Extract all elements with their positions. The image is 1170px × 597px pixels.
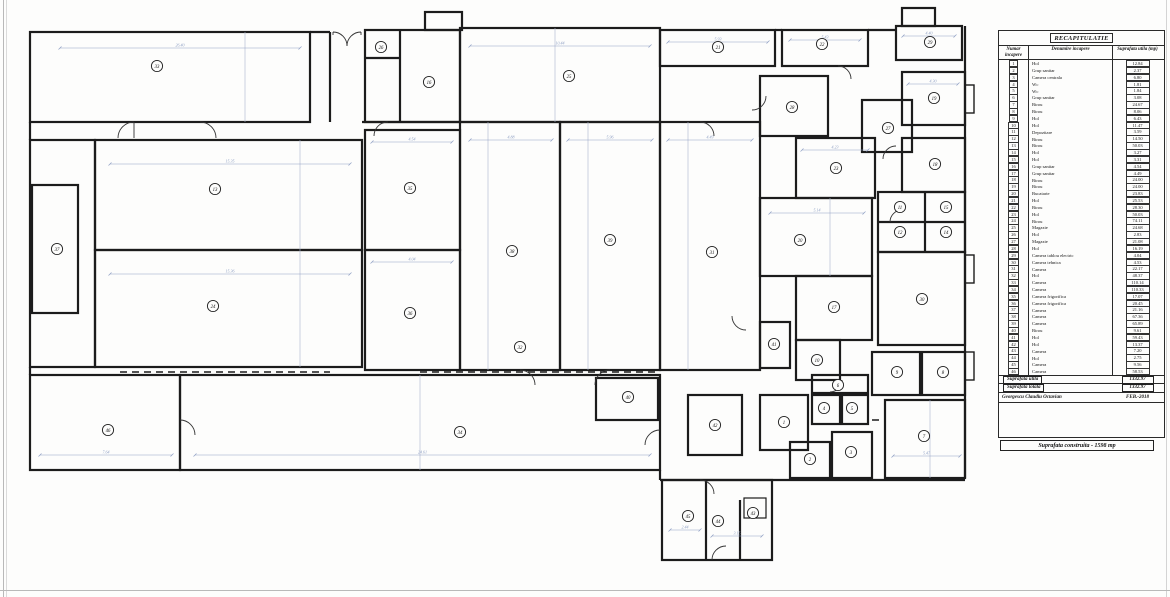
room-circle-number: 24 [211, 305, 216, 310]
recap-row: 21Hol25.53 [999, 197, 1164, 204]
recap-row: 44Hol2.75 [999, 354, 1164, 361]
room-circle-number: 28 [790, 106, 795, 111]
room-circle-number: 35 [408, 187, 413, 192]
dimension-label: 5.14 [814, 208, 821, 213]
recap-row: 6Grup sanitar3.08 [999, 94, 1164, 101]
room-circle-number: 14 [944, 231, 949, 236]
room-circle-number: 11 [898, 206, 902, 211]
room-circle-number: 12 [898, 231, 903, 236]
dimension-label: 15.36 [226, 269, 235, 274]
recap-header-area: Suprafata utila (mp) [1113, 46, 1162, 59]
dimension-label: 15.35 [226, 159, 235, 164]
recap-row: 1Hol12.84 [999, 60, 1164, 67]
recap-row: 8Birou8.06 [999, 108, 1164, 115]
dimension-label: 2.44 [682, 525, 689, 530]
recap-row: 34Camera110.33 [999, 286, 1164, 293]
recap-table: RECAPITULATIE Numar incapere Denumire in… [998, 30, 1165, 438]
dimension-label: 4.88 [508, 135, 515, 140]
room-circle-number: 22 [820, 43, 825, 48]
recap-rows: 1Hol12.842Grup sanitar2.373Camera centra… [999, 60, 1164, 375]
recap-row: 33Camera110.14 [999, 279, 1164, 286]
room-circle-number: 19 [932, 97, 937, 102]
recap-row: 5Wc1.84 [999, 87, 1164, 94]
room-circle-number: 46 [106, 429, 111, 434]
room-circle-number: 31 [710, 251, 715, 256]
summary-value: 1332.97 [1113, 376, 1162, 384]
dimension-label: 3.15 [734, 531, 741, 536]
room-circle-number: 38 [510, 250, 515, 255]
recap-row: 19Birou24.00 [999, 183, 1164, 190]
recap-row: 10Hol11.47 [999, 122, 1164, 129]
dimension-label: 4.49 [707, 135, 714, 140]
dimension-label: 4.23 [832, 145, 839, 150]
room-circle-number: 23 [834, 167, 839, 172]
room-circle-number: 43 [751, 512, 756, 517]
room-circle-number: 15 [944, 206, 949, 211]
summary-label: Suprafata utila [999, 376, 1113, 384]
recap-row: 16Grup sanitar4.54 [999, 163, 1164, 170]
walls [30, 8, 974, 560]
recap-empty-area [999, 403, 1164, 437]
recap-row: 15Hol3.31 [999, 156, 1164, 163]
room-circle-number: 34 [458, 431, 463, 436]
recap-row: 35Camera frigorifica17.07 [999, 293, 1164, 300]
recap-row: 42Hol13.37 [999, 341, 1164, 348]
room-circle-number: 44 [716, 520, 721, 525]
recap-row: 9Hol6.43 [999, 115, 1164, 122]
recap-summary-row: Suprafata utila1332.97 [999, 375, 1164, 383]
recap-row: 25Magazie24.68 [999, 224, 1164, 231]
recap-row: 24Birou74.11 [999, 217, 1164, 224]
dimension-label: 5.96 [607, 135, 614, 140]
signature-name: Georgescu Claudiu Octavian [999, 395, 1113, 400]
recap-row: 28Hol16.19 [999, 245, 1164, 252]
recap-row: 36Camera frigorifica20.45 [999, 300, 1164, 307]
recap-title: RECAPITULATIE [1050, 33, 1112, 43]
room-circle-number: 39 [608, 239, 613, 244]
room-number: 46 [999, 368, 1029, 375]
dimension-label: 10.44 [556, 41, 565, 46]
recap-row: 32Hol48.37 [999, 272, 1164, 279]
recap-row: 7Birou24.67 [999, 101, 1164, 108]
recap-row: 43Camera7.20 [999, 347, 1164, 354]
room-circle-number: 25 [567, 75, 572, 80]
room-circle-number: 30 [920, 298, 925, 303]
room-circle-number: 16 [427, 81, 432, 86]
dimension-label: 26.40 [176, 43, 185, 48]
dimension-lines: 26.4015.3515.3624.617.6410.444.885.964.4… [39, 31, 962, 538]
built-area-note: Suprafata construita - 1598 mp [1000, 440, 1154, 451]
recap-row: 45Camera9.56 [999, 361, 1164, 368]
dimension-label: 4.54 [409, 137, 416, 142]
recap-row: 40Birou9.61 [999, 327, 1164, 334]
room-circle-number: 26 [379, 46, 384, 51]
room-number-circles: 3313244634372616253536383931212229281927… [51, 36, 951, 526]
room-circle-number: 29 [928, 41, 933, 46]
room-circle-number: 27 [886, 127, 891, 132]
recap-row: 17Grup sanitar4.49 [999, 170, 1164, 177]
room-name: Camera [1029, 368, 1113, 375]
summary-label: Suprafata totala [999, 384, 1113, 392]
recap-row: 30Camera tehnica4.53 [999, 259, 1164, 266]
room-circle-number: 10 [815, 359, 820, 364]
recap-summary: Suprafata utila1332.97Suprafata totala13… [999, 375, 1164, 392]
signature-row: Georgescu Claudiu Octavian FEB.-2018 [999, 392, 1164, 403]
room-area: 58.53 [1113, 368, 1162, 375]
recap-row: 3Camera centrala6.80 [999, 74, 1164, 81]
room-circle-number: 13 [213, 188, 218, 193]
recap-row: 39Camera65.89 [999, 320, 1164, 327]
recap-header-name: Denumire incapere [1029, 46, 1113, 59]
recap-row: 22Birou28.30 [999, 204, 1164, 211]
dimension-label: 4.30 [930, 79, 937, 84]
recap-row: 46Camera58.53 [999, 368, 1164, 375]
dimension-label: 24.61 [418, 450, 427, 455]
dimension-label: 7.64 [103, 450, 110, 455]
room-circle-number: 20 [798, 239, 803, 244]
recap-row: 29Camera tablou electric4.04 [999, 252, 1164, 259]
recap-row: 14Hol3.27 [999, 149, 1164, 156]
signature-date: FEB.-2018 [1113, 395, 1162, 400]
dimension-label: 5.47 [923, 451, 931, 456]
recap-row: 23Hol50.03 [999, 211, 1164, 218]
room-circle-number: 40 [626, 396, 631, 401]
recap-row: 4Wc1.81 [999, 81, 1164, 88]
room-circle-number: 1 [783, 421, 785, 426]
room-circle-number: 17 [832, 306, 837, 311]
summary-value: 1332.97 [1113, 384, 1162, 392]
recap-row: 37Camera21.16 [999, 306, 1164, 313]
recap-row: 11Depozitare3.59 [999, 128, 1164, 135]
floorplan-sheet: { "table": { "title": "RECAPITULATIE", "… [0, 0, 1170, 597]
recap-row: 38Camera67.36 [999, 313, 1164, 320]
recap-row: 27Magazie21.08 [999, 238, 1164, 245]
recap-row: 31Camera22.17 [999, 265, 1164, 272]
recap-row: 13Birou50.03 [999, 142, 1164, 149]
room-circle-number: 42 [713, 424, 718, 429]
room-circle-number: 36 [408, 312, 413, 317]
dimension-label: 4.40 [926, 31, 933, 36]
room-circle-number: 33 [155, 65, 160, 70]
room-circle-number: 37 [55, 248, 60, 253]
recap-header-row: Numar incapere Denumire incapere Suprafa… [999, 45, 1164, 60]
dimension-label: 4.04 [409, 257, 416, 262]
recap-header-number: Numar incapere [999, 46, 1029, 59]
recap-row: 26Hol2.83 [999, 231, 1164, 238]
room-circle-number: 45 [686, 515, 691, 520]
recap-row: 2Grup sanitar2.37 [999, 67, 1164, 74]
recap-row: 20Bucatarie23.83 [999, 190, 1164, 197]
room-circle-number: 21 [716, 46, 721, 51]
room-circle-number: 18 [933, 163, 938, 168]
recap-row: 41Hol59.43 [999, 334, 1164, 341]
dimension-label: 5.93 [715, 37, 722, 42]
recap-row: 18Birou24.00 [999, 176, 1164, 183]
floorplan-drawing: 26.4015.3515.3624.617.6410.444.885.964.4… [0, 0, 1170, 597]
recap-row: 12Birou14.50 [999, 135, 1164, 142]
room-circle-number: 32 [518, 346, 523, 351]
recap-summary-row: Suprafata totala1332.97 [999, 383, 1164, 391]
room-circle-number: 41 [772, 343, 777, 348]
